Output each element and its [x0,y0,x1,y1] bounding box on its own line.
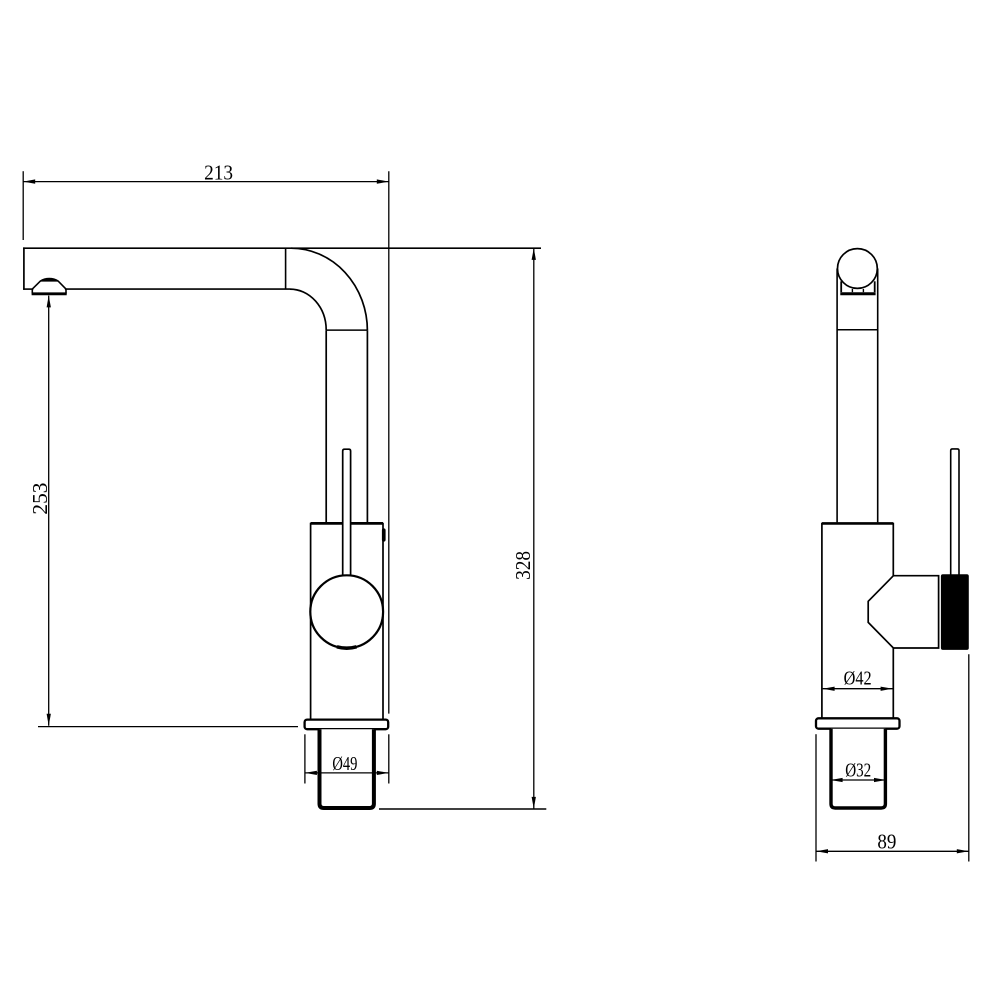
svg-text:Ø32: Ø32 [845,761,871,782]
svg-text:213: 213 [204,160,233,184]
svg-text:Ø49: Ø49 [332,754,357,775]
svg-text:328: 328 [511,551,535,580]
svg-text:253: 253 [28,483,52,515]
svg-text:Ø42: Ø42 [844,669,872,690]
svg-text:89: 89 [877,829,896,853]
